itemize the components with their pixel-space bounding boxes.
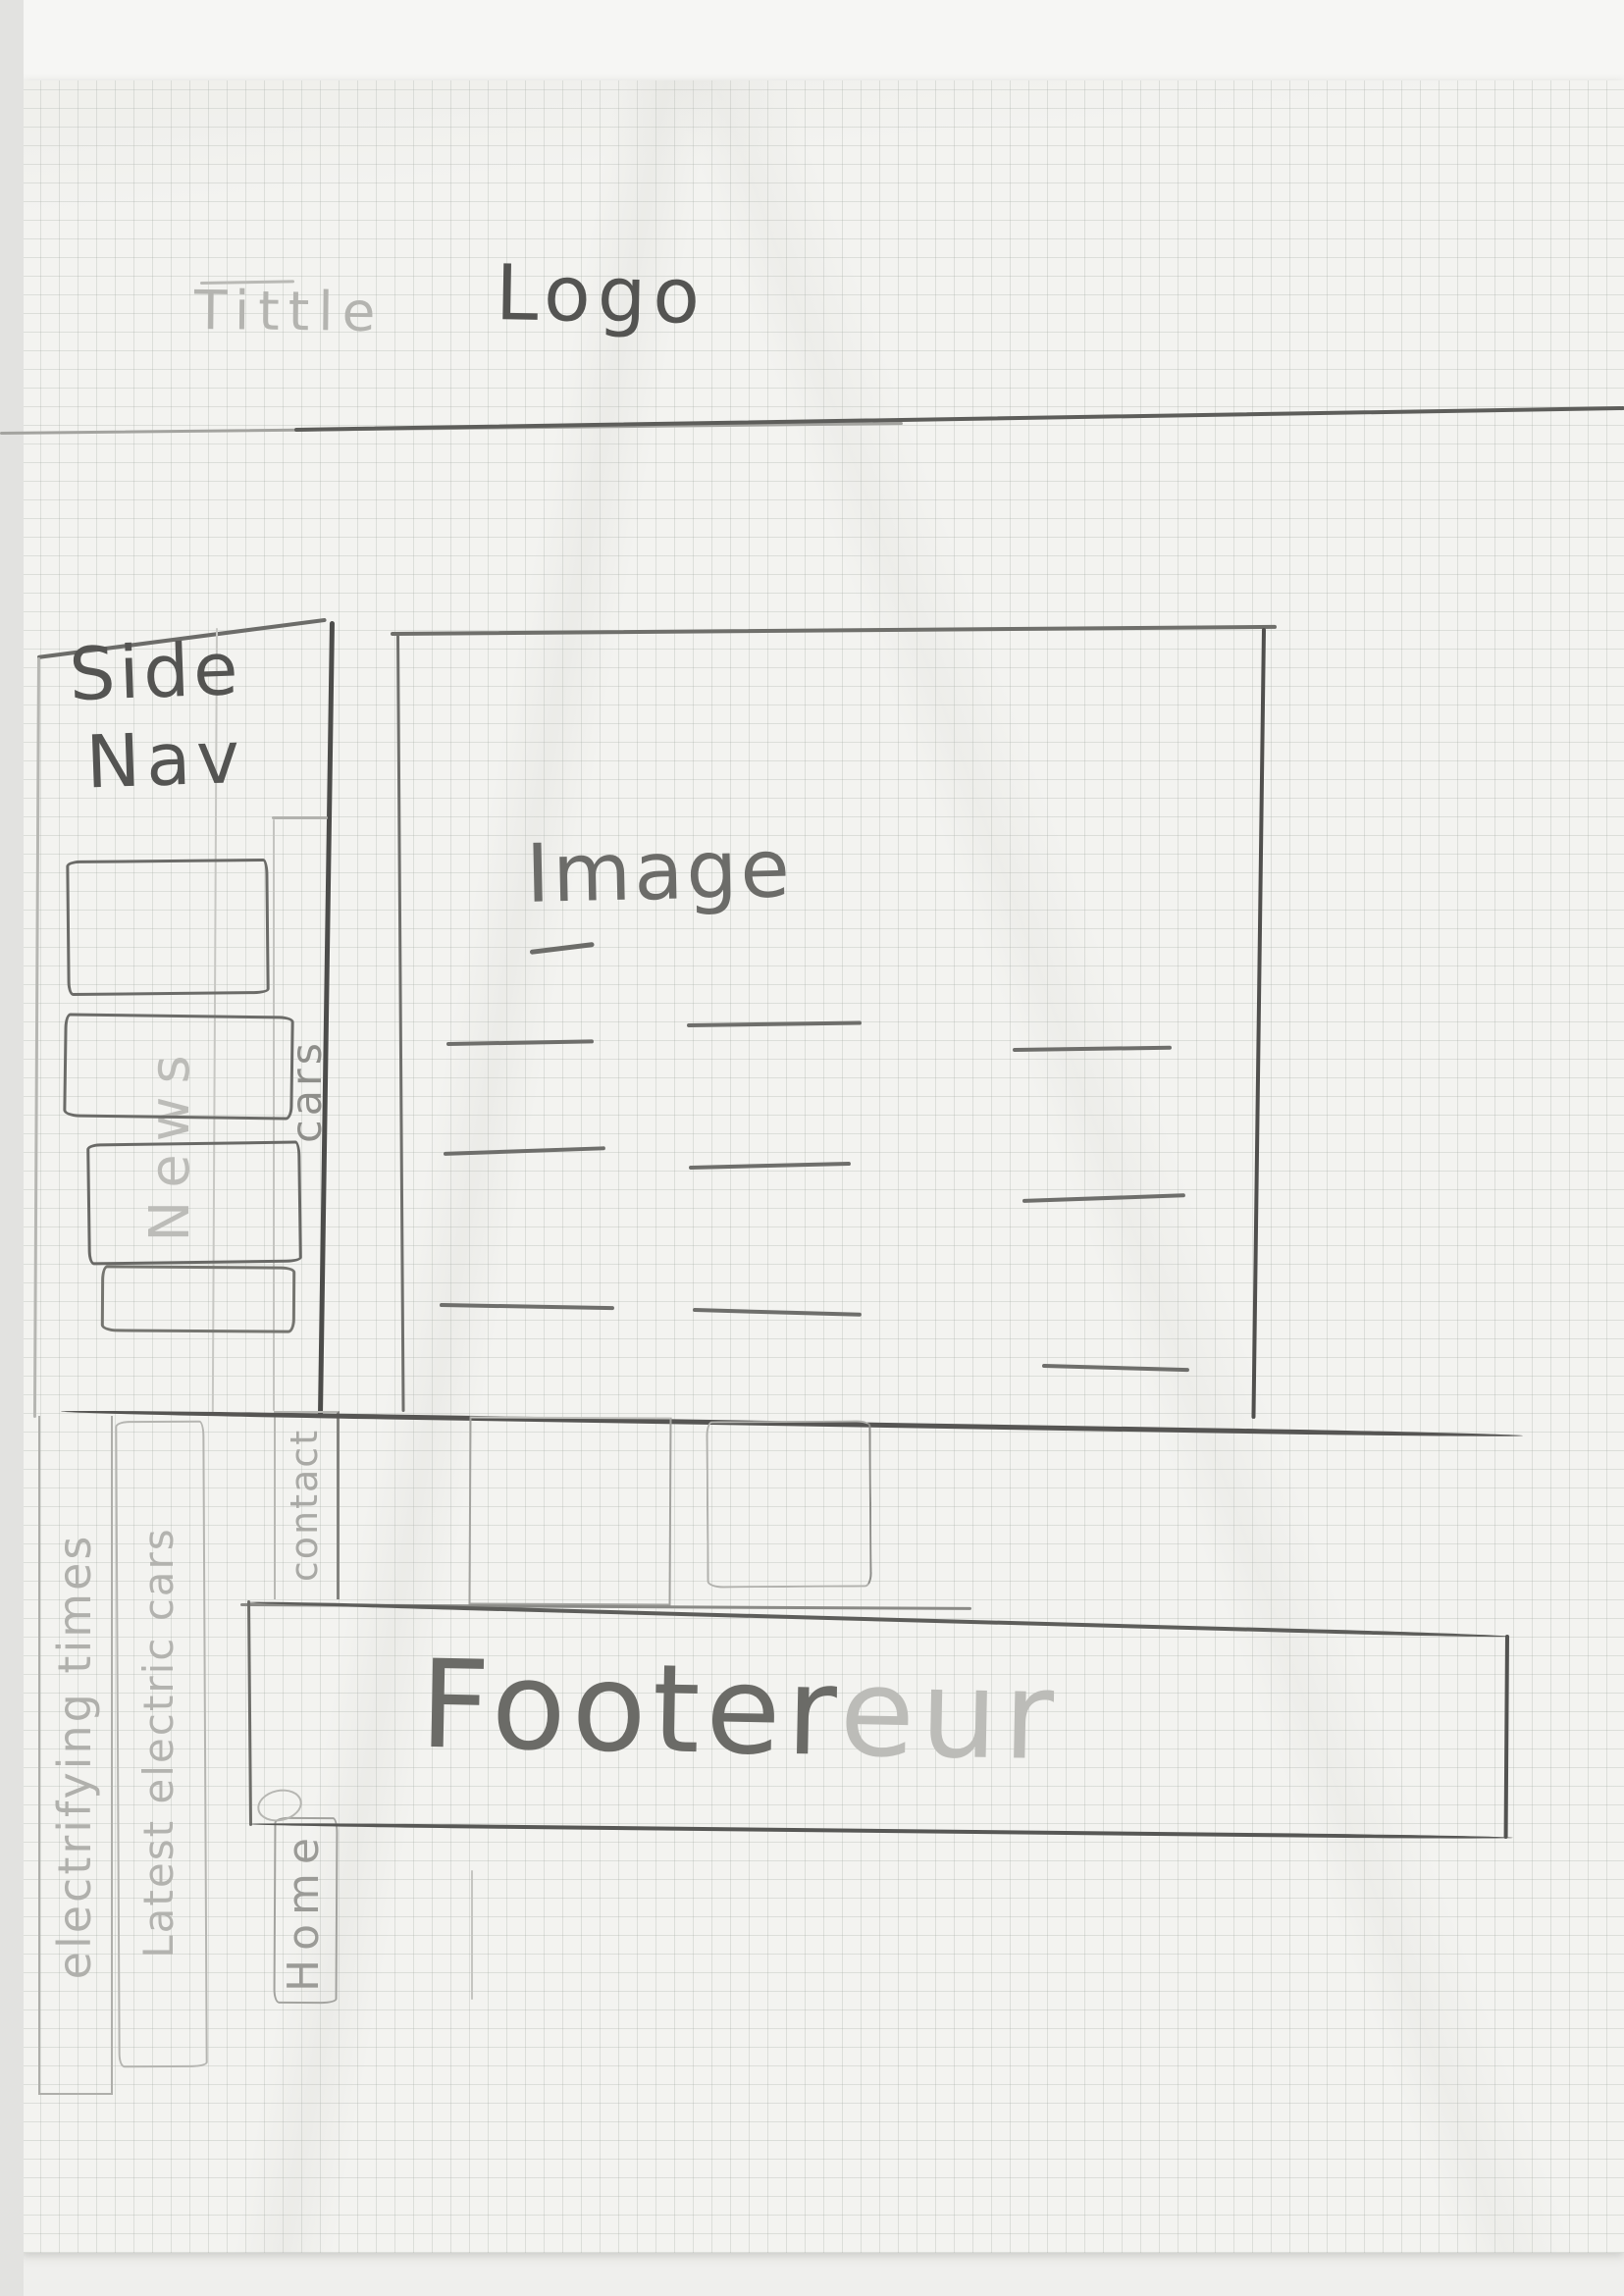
contact-strip-box — [274, 1411, 340, 1599]
sidebar-nav-item-box — [86, 1140, 302, 1265]
nav-strip-top-connector — [272, 816, 328, 819]
image-placeholder-label: Image — [525, 829, 793, 915]
content-placeholder-box — [706, 1420, 871, 1588]
stray-vertical-mark — [471, 1870, 473, 2000]
page-title: Tittle — [194, 284, 385, 339]
home-strip-box — [274, 1817, 339, 2004]
sidebar-nav-item-box — [63, 1013, 293, 1120]
footer-label-faint: eur — [838, 1643, 1061, 1788]
content-placeholder-box — [468, 1416, 671, 1605]
footer-label-main: Footer — [419, 1635, 841, 1784]
scanned-wireframe-sketch: Tittle Logo Side Nav News cars contact H… — [0, 0, 1624, 2296]
scanner-margin-bottom — [0, 2253, 1624, 2296]
sidebar-heading-line2: Nav — [84, 721, 246, 800]
sidebar-heading: Side Nav — [68, 633, 246, 800]
footer-label: Footereur — [419, 1644, 1061, 1778]
sidebar-nav-item-box — [101, 1265, 295, 1332]
rotated-note-latest-electric: Latest electric cars — [138, 1424, 182, 2061]
logo-text: Logo — [495, 255, 707, 336]
scanner-margin-left — [0, 0, 24, 2296]
sidebar-nav-item-box — [66, 859, 269, 996]
scanner-margin-top — [0, 0, 1624, 82]
nav-strip-label-cars: cars — [287, 1027, 326, 1155]
sidebar-heading-line1: Side — [68, 633, 243, 711]
rotated-note-electrifying: electrifying times — [52, 1423, 97, 2090]
